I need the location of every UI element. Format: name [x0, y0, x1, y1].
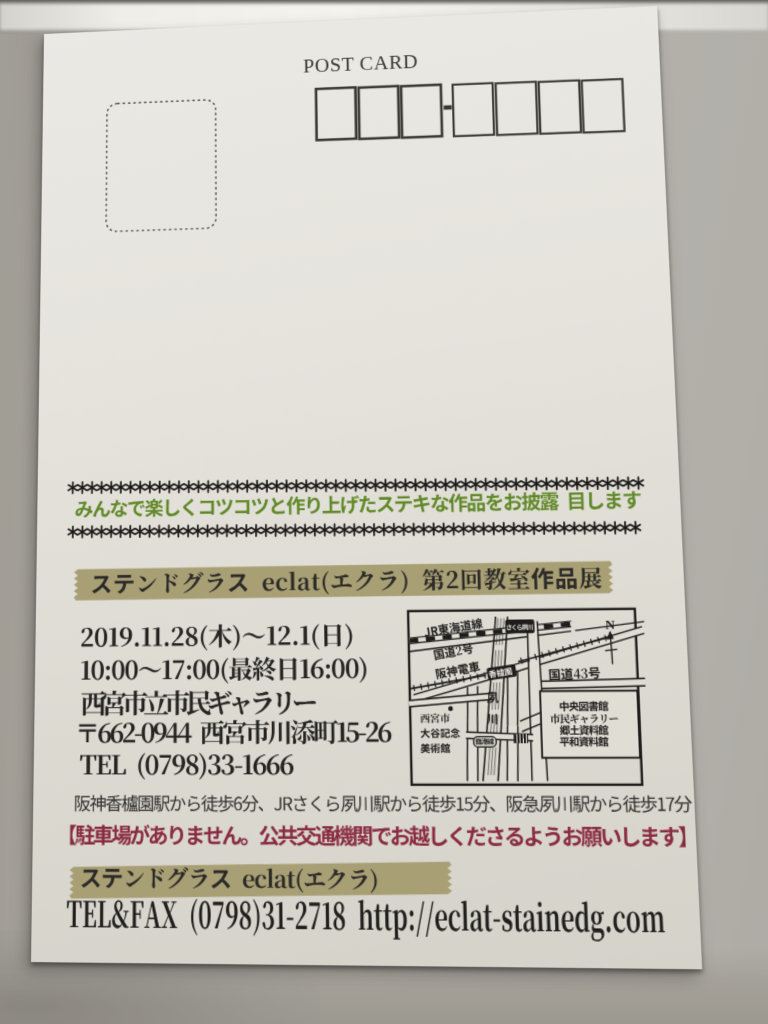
- svg-text:N: N: [605, 619, 616, 633]
- svg-text:POST CARD: POST CARD: [303, 51, 419, 77]
